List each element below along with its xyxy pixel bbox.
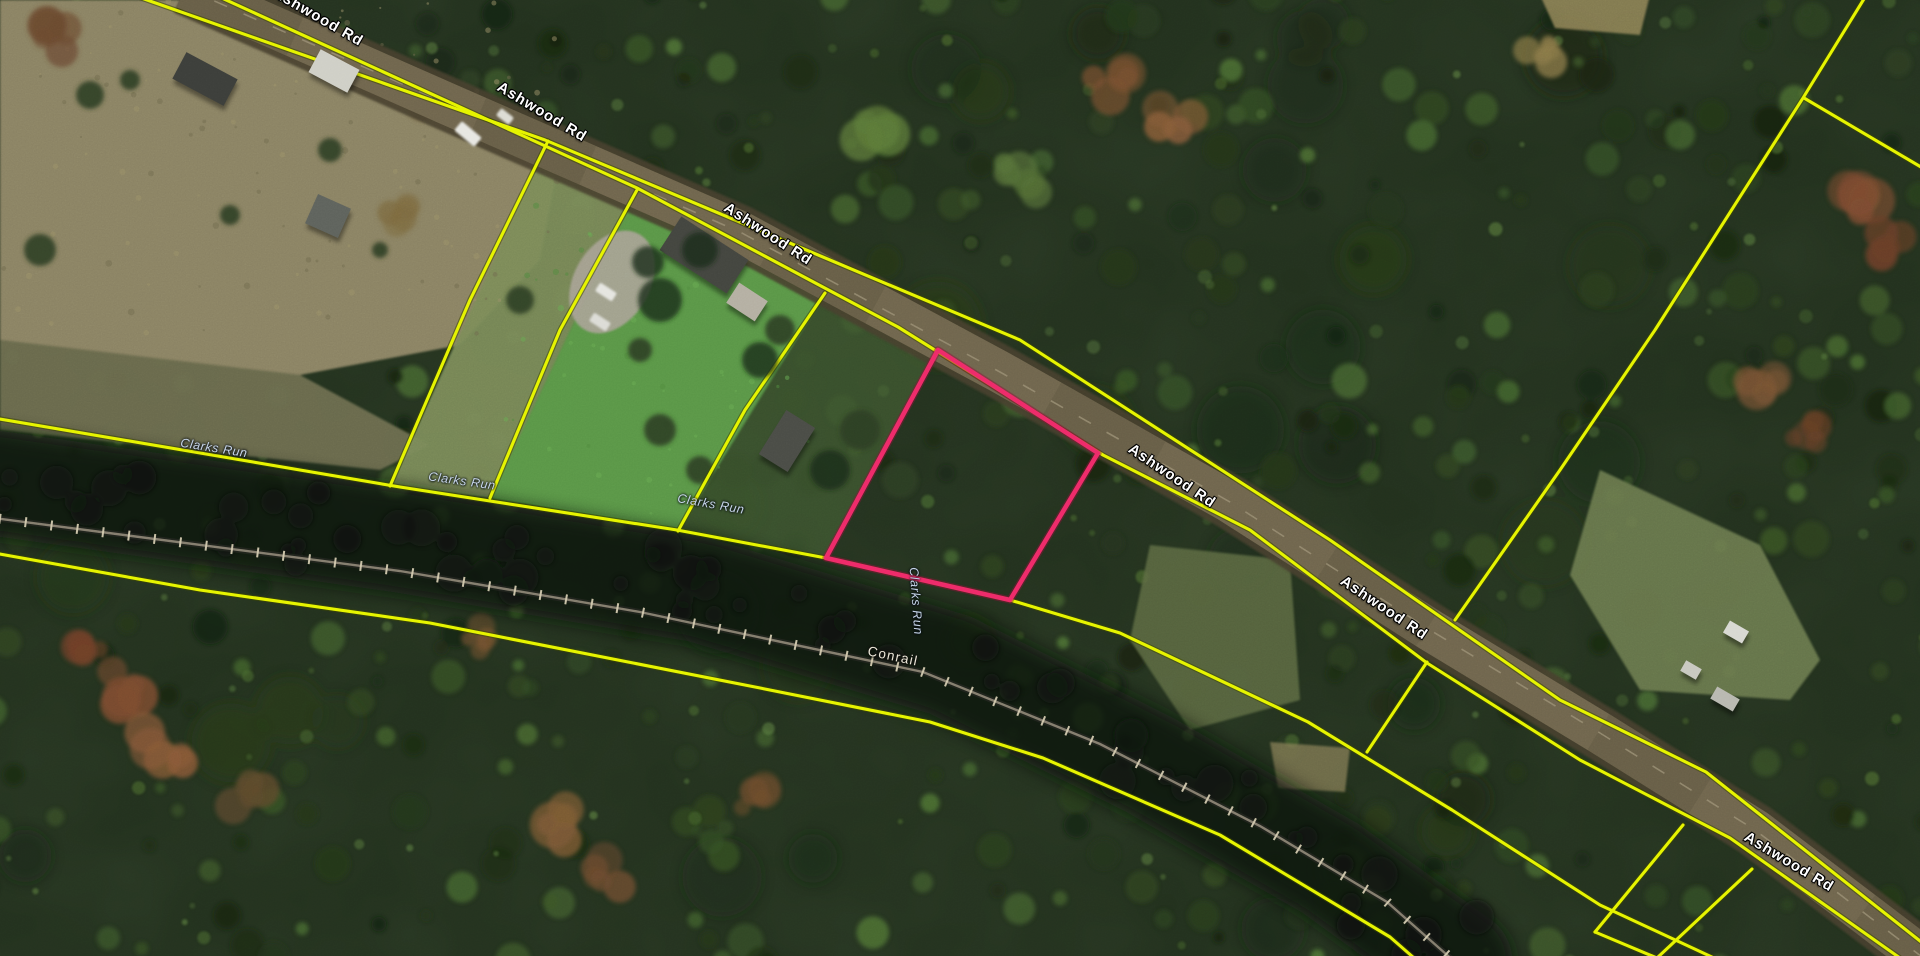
aerial-basemap (0, 0, 1920, 956)
imagery-grain (0, 0, 1920, 956)
map-viewport[interactable]: Ashwood Rd Ashwood Rd Ashwood Rd Ashwood… (0, 0, 1920, 956)
